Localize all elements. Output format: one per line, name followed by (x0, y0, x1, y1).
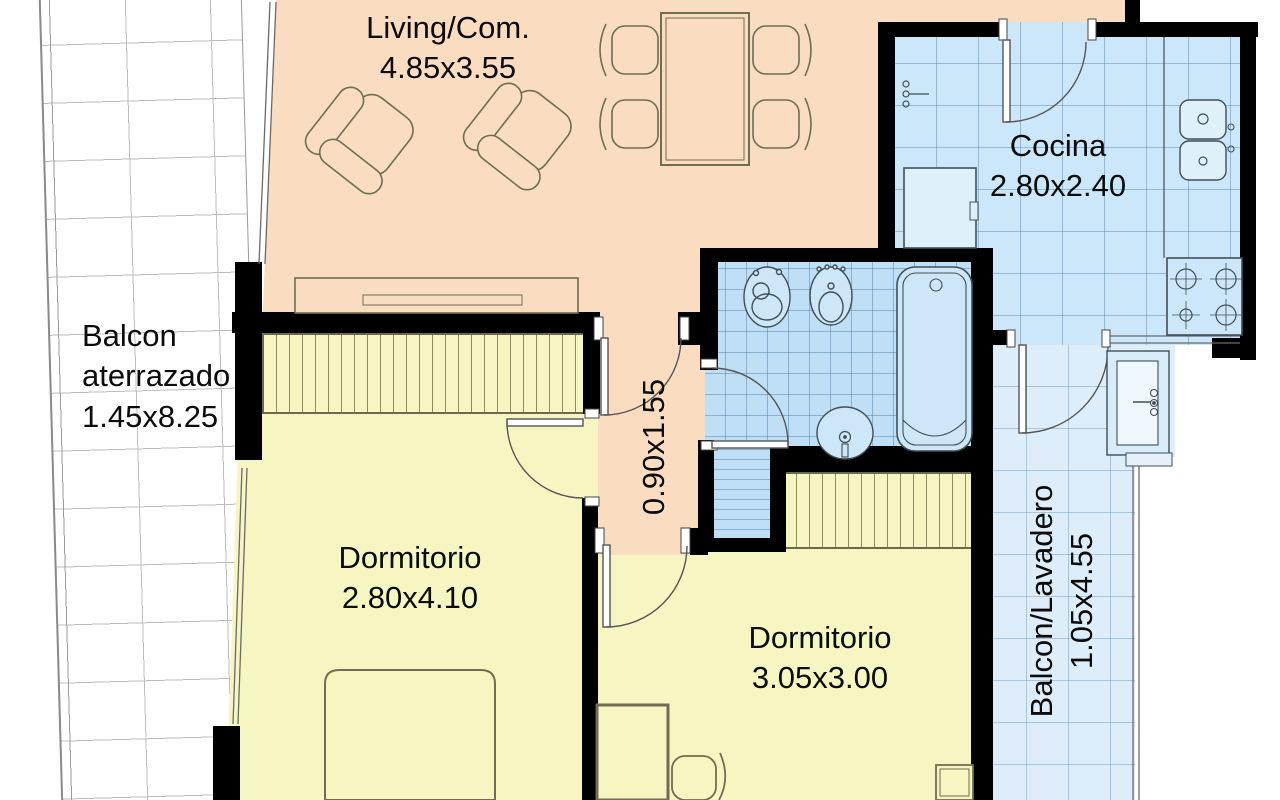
bedroom-1-label: Dormitorio 2.80x4.10 (290, 538, 530, 619)
wardrobe-bedroom-2 (782, 472, 981, 549)
laundry-area-floor (1133, 345, 1175, 457)
room-dims: 0.90x1.55 (634, 352, 674, 542)
room-name: Living/Com. (333, 8, 563, 48)
laundry-balcony-label: Balcon/Lavadero 1.05x4.55 (1022, 469, 1108, 733)
room-dims: 2.80x4.10 (290, 578, 530, 618)
room-dims: 1.45x8.25 (82, 397, 254, 437)
room-dims: 4.85x3.55 (333, 48, 563, 88)
kitchen-label: Cocina 2.80x2.40 (958, 126, 1158, 207)
floor-plan: Living/Com. 4.85x3.55 Cocina 2.80x2.40 B… (0, 0, 1280, 800)
terrace-balcony-label: Balcon aterrazado 1.45x8.25 (82, 316, 254, 437)
hallway-label: 0.90x1.55 (634, 352, 670, 542)
room-dims: 1.05x4.55 (1062, 469, 1102, 733)
room-name: Cocina (958, 126, 1158, 166)
room-dims: 2.80x2.40 (958, 166, 1158, 206)
living-room-label: Living/Com. 4.85x3.55 (333, 8, 563, 89)
room-name: Dormitorio (290, 538, 530, 578)
bathroom-entry-nook (714, 440, 770, 540)
wardrobe-bedroom-1 (262, 333, 587, 414)
kitchen-passage-floor (895, 0, 1128, 24)
room-name: Balcon/Lavadero (1022, 469, 1062, 733)
room-name: Balcon aterrazado (82, 316, 254, 397)
bedroom-2-label: Dormitorio 3.05x3.00 (700, 618, 940, 699)
bathroom-floor (705, 248, 993, 452)
room-dims: 3.05x3.00 (700, 658, 940, 698)
room-name: Dormitorio (700, 618, 940, 658)
